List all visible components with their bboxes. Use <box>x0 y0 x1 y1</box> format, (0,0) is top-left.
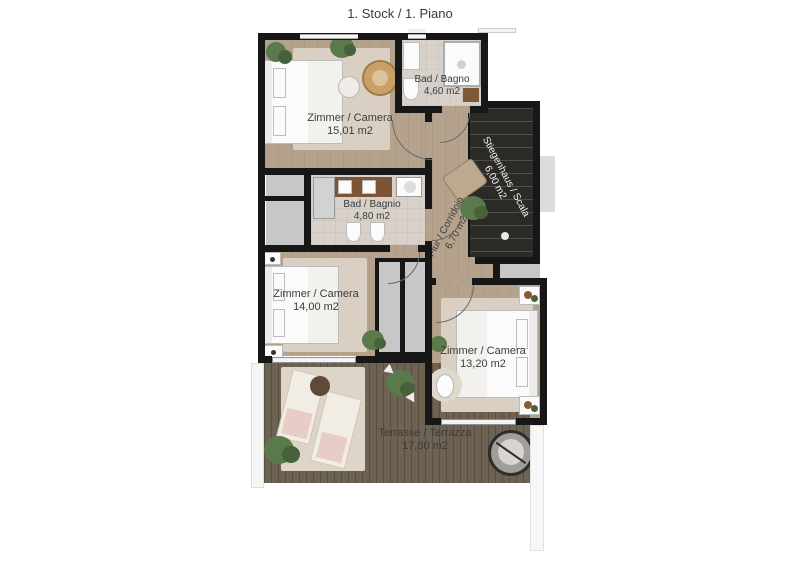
wall <box>258 33 488 40</box>
washbasin <box>403 42 420 70</box>
door-threshold <box>390 245 418 252</box>
armchair <box>362 60 398 96</box>
wall <box>418 245 432 252</box>
wall <box>395 33 402 113</box>
sliding-door <box>272 357 356 363</box>
wall <box>395 106 442 113</box>
wall <box>425 418 441 425</box>
side-table <box>338 76 360 98</box>
stair-dot <box>501 232 509 240</box>
flower-icon <box>531 405 538 412</box>
window <box>300 34 358 39</box>
bedroom3-label: Zimmer / Camera13,20 m2 <box>423 345 543 371</box>
wall <box>258 245 390 252</box>
plant-icon <box>374 338 386 349</box>
wall <box>475 257 540 264</box>
wall <box>304 175 311 252</box>
window <box>408 34 426 39</box>
plant-icon <box>282 446 300 463</box>
toilet <box>346 222 361 242</box>
wall <box>472 278 547 285</box>
flower-icon <box>531 295 538 302</box>
chair <box>436 374 454 398</box>
plant-icon <box>278 50 292 64</box>
washing-machine <box>396 177 422 197</box>
plant-icon <box>344 44 356 56</box>
sink <box>338 180 352 194</box>
closet-left <box>266 175 304 196</box>
wall <box>432 278 436 285</box>
wall <box>258 168 432 175</box>
wall <box>425 252 432 425</box>
bedroom2-label: Zimmer / Camera14,00 m2 <box>256 288 376 314</box>
bidet <box>370 222 385 242</box>
door-threshold <box>436 278 472 285</box>
wall <box>533 101 540 264</box>
wall <box>516 418 547 425</box>
wall <box>258 196 311 201</box>
page-title: 1. Stock / 1. Piano <box>0 6 800 21</box>
door-threshold <box>442 106 470 113</box>
railing <box>251 363 264 488</box>
round-table <box>310 376 330 396</box>
sink <box>362 180 376 194</box>
window-shutter <box>540 156 555 212</box>
terrace-label: Terrasse / Terrazza17,80 m2 <box>365 427 485 453</box>
wall <box>356 356 432 363</box>
nightstand <box>263 252 281 265</box>
vanity-counter <box>332 177 392 197</box>
wall <box>486 101 540 108</box>
floorplan: 1. Stock / 1. Piano Zimmer / Camera15,01… <box>0 0 800 565</box>
wall <box>258 356 272 363</box>
sliding-door <box>441 419 516 425</box>
bath1-label: Bad / Bagno4,60 m2 <box>405 74 479 98</box>
wall <box>493 257 500 285</box>
closet-left2 <box>266 201 304 245</box>
pillar <box>530 425 544 551</box>
hanging-chair <box>488 430 534 476</box>
wall <box>540 278 547 425</box>
bath2-label: Bad / Bagnio4,80 m2 <box>312 199 432 223</box>
pillow <box>273 68 286 98</box>
wall <box>425 175 432 209</box>
nightstand <box>519 286 540 305</box>
nightstand <box>519 396 540 415</box>
